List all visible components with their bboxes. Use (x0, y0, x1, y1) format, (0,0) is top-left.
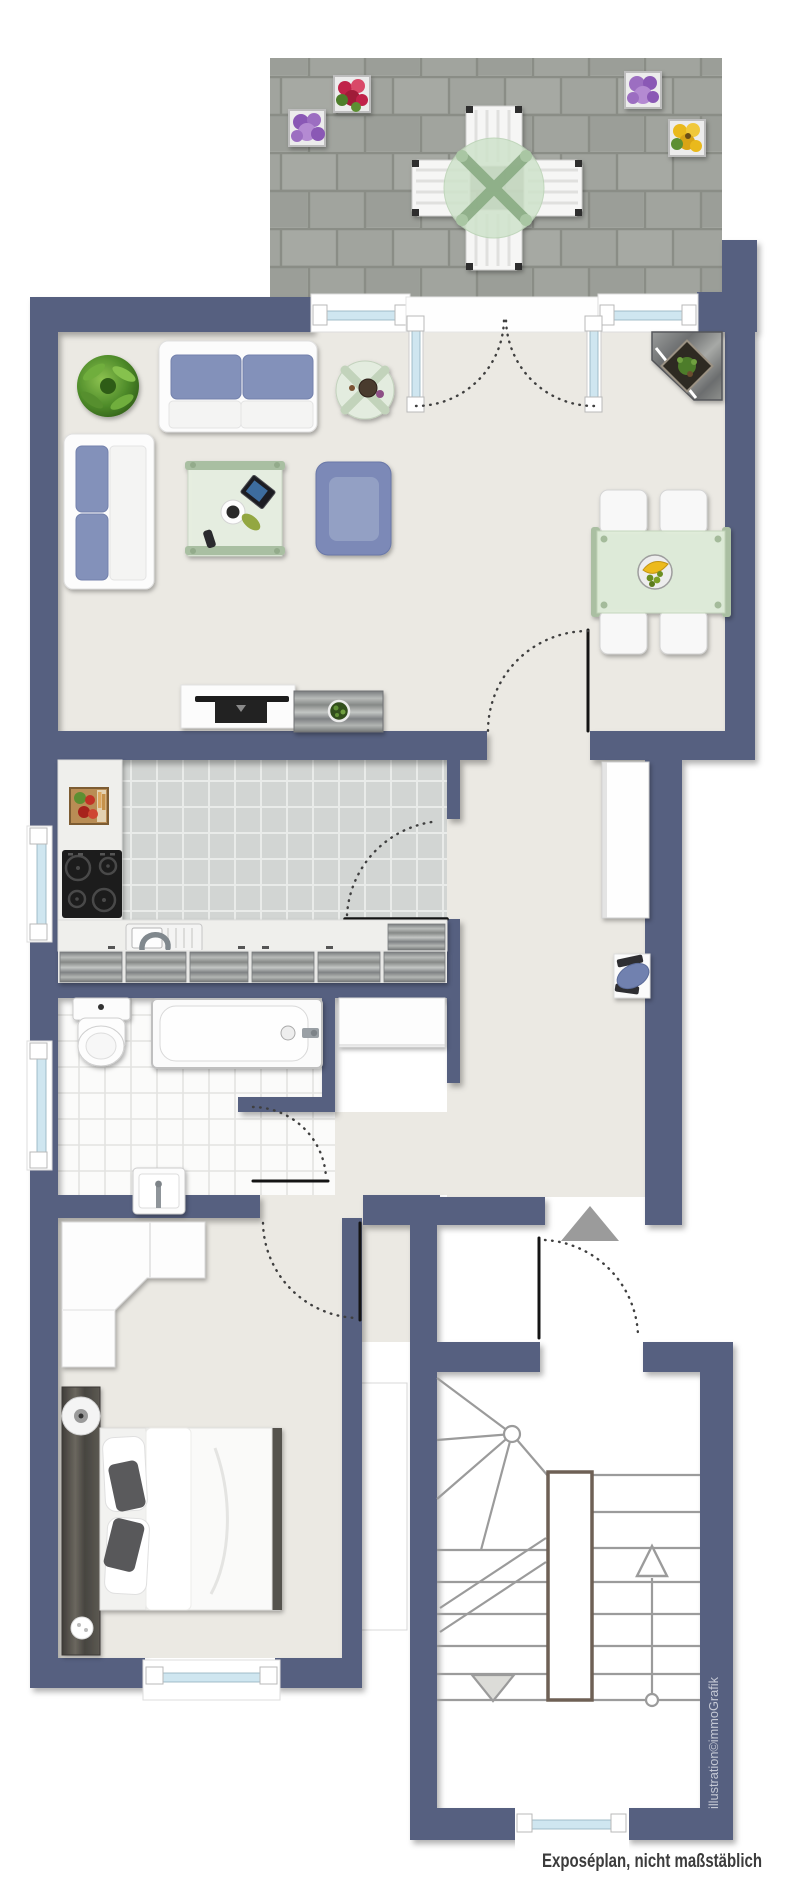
doorway-living (487, 731, 590, 760)
wall (643, 1342, 733, 1372)
hall-white-cabinet (339, 998, 445, 1047)
wall (322, 998, 335, 1097)
flower-pot-sunflower (669, 120, 705, 156)
doorway-kitchen (447, 819, 460, 919)
stair-newel (504, 1426, 520, 1442)
sideboard (294, 691, 383, 732)
flower-pot-purple-2 (625, 72, 661, 108)
wall (722, 240, 757, 300)
wall (447, 919, 460, 1083)
kitchen-sink (126, 924, 202, 952)
terrace (270, 58, 722, 297)
wall (30, 297, 313, 332)
stove-cooktop (62, 850, 122, 918)
wall (410, 1225, 437, 1840)
window-kitchen (27, 826, 52, 942)
wall (437, 1342, 540, 1372)
window-bathroom (27, 1041, 52, 1170)
side-table (336, 361, 394, 419)
wall (645, 760, 682, 1225)
wall (30, 332, 58, 1688)
building-entrance-door (515, 1806, 629, 1850)
wall (30, 983, 460, 998)
hall-cabinet (602, 762, 649, 918)
wall (363, 1195, 440, 1225)
wall (238, 1097, 335, 1112)
tv-lowboard (181, 685, 295, 728)
dining-chair (600, 490, 647, 534)
sofa (159, 341, 317, 432)
dining-chair (660, 490, 707, 534)
vegetable-crate (70, 788, 108, 824)
window-bedroom (143, 1660, 280, 1700)
dining-chair (600, 610, 647, 654)
floor-plan-page: Exposéplan, nicht maßstäblich illustrati… (0, 0, 787, 1900)
wall (627, 1808, 733, 1840)
armchair (316, 462, 391, 555)
wall (30, 1658, 145, 1688)
wall (590, 731, 755, 760)
wall (440, 1197, 545, 1225)
sideboard-plant (329, 701, 349, 721)
bathtub (152, 999, 322, 1068)
bed-frame-edge (272, 1428, 282, 1610)
flower-pot-red (334, 76, 370, 112)
window-living-right (598, 294, 698, 332)
toilet (73, 998, 130, 1066)
wall (447, 760, 460, 819)
coffee-table (185, 461, 285, 556)
wall (275, 1658, 362, 1688)
watermark-text: illustration©immoGrafik (707, 1676, 721, 1809)
loveseat (64, 434, 154, 589)
caption-text: Exposéplan, nicht maßstäblich (542, 1850, 762, 1872)
wall (30, 731, 487, 760)
washbasin (133, 1168, 185, 1214)
flower-pot-purple (289, 110, 325, 146)
dining-chair (660, 610, 707, 654)
niche-floor (362, 1218, 410, 1342)
desk-with-office-chair (613, 954, 653, 998)
stair-spine (548, 1472, 592, 1700)
floor-plan-svg: Exposéplan, nicht maßstäblich illustrati… (0, 0, 787, 1900)
window-living-left (311, 294, 410, 332)
wall (410, 1808, 517, 1840)
potted-plant (77, 355, 139, 417)
